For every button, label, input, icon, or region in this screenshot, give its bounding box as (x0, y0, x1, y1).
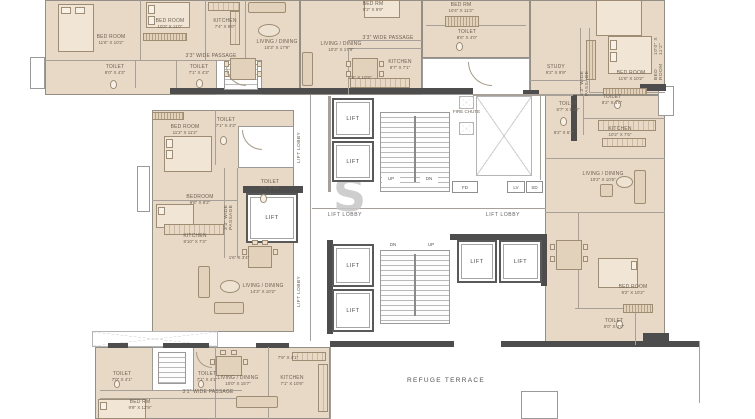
lift-core-4: LIFT (332, 289, 374, 332)
kitchen-counter (318, 364, 328, 412)
partition (545, 212, 665, 213)
stair-dn-label: DN (420, 176, 438, 183)
floor-plan: S LIFT LIFT LIFT LIFT LIFT LIFT LIFT UP … (0, 0, 755, 419)
lift-lobby-label: LIFT LOBBY (478, 212, 528, 221)
room-label-toilet: TOILET7'1" X 4'3" (204, 117, 248, 130)
chair (257, 71, 262, 77)
partition (583, 118, 665, 119)
stair-rail (414, 254, 416, 316)
pillow (166, 150, 173, 159)
room-label-toilet: TOILET8'0" X 4'0" (590, 318, 638, 331)
room-label-bedroom: BEDROOM9'8" X 8'2" (176, 194, 224, 207)
pillow (158, 207, 165, 215)
chair (257, 61, 262, 67)
entry-steps-bottom (158, 352, 186, 384)
room-label-kitchen: KITCHEN7'1" X 10'8" (269, 375, 315, 388)
room-label-bedroom: BED RM9'9" X 12'9" (116, 399, 164, 412)
room-label-foyer: 8'2" X 6'1" (544, 130, 584, 137)
pillow (166, 139, 173, 148)
lift-label: LIFT (503, 244, 538, 279)
coffee-table (258, 24, 280, 37)
sofa (214, 302, 244, 314)
lift-left-wing: LIFT (246, 193, 298, 243)
wall (170, 88, 473, 94)
chair (550, 244, 555, 250)
lift-core-5: LIFT (457, 240, 497, 283)
refuge-terrace-label: REFUGE TERRACE (398, 377, 494, 387)
lift-label: LIFT (336, 145, 370, 178)
wardrobe (152, 112, 184, 120)
room-label-toilet: TOILET7'0" X 4'1" (101, 371, 143, 384)
lift-core-3: LIFT (332, 244, 374, 287)
sofa (248, 2, 286, 13)
terrace-planter (521, 391, 558, 419)
wall (330, 341, 454, 347)
room-label-living: LIVING / DINING10'3" X 17'9" (315, 41, 367, 54)
ac-ledge-left-1 (30, 57, 45, 89)
room-label-passage: 3'3" WIDE PASSAGE (173, 53, 249, 60)
stair-rail (414, 116, 416, 182)
kitchen-counter (208, 2, 240, 11)
ac-ledge-left-2 (137, 166, 150, 212)
wall (108, 343, 128, 348)
room-label-bedroom: BED RM10'4" X 11'2" (433, 2, 489, 15)
room-label-study: STUDY9'2" X 9'9" (533, 64, 579, 77)
room-label-living: LIVING / DINING10'0" X 15'7" (212, 375, 264, 388)
room-label-deck: 7'9" X 4'1" (268, 355, 308, 362)
pillow (75, 7, 85, 14)
sofa (302, 52, 313, 86)
chair (550, 256, 555, 262)
chair (583, 244, 588, 250)
pillow (61, 7, 71, 14)
lift-core-1: LIFT (332, 98, 374, 139)
room-label-passage-vertical: 3'3" WIDE PASSAGE (580, 50, 589, 96)
room-label-kitchen: KITCHEN8'10" X 7'3" (170, 233, 220, 246)
toilet-fixture (560, 117, 567, 126)
room-label-bedroom: BED ROOM11'2" X 11'2" (160, 124, 210, 137)
lift-label: LIFT (250, 197, 294, 239)
wall (256, 343, 289, 348)
wardrobe (143, 33, 187, 41)
lift-core-2: LIFT (332, 141, 374, 182)
fire-chute-shaft (459, 122, 474, 135)
room-label-toilet: TOILET7'1" X 4'3" (176, 64, 222, 77)
partition (237, 168, 238, 258)
lift-lobby-label-vertical: LIFT LOBBY (297, 122, 308, 172)
room-label-passage: 3'1" WIDE PASSAGE (170, 389, 246, 396)
lift-lobby-label: LIFT LOBBY (320, 212, 370, 221)
dining-table (556, 240, 582, 270)
room-label-living: LIVING / DINING10'3" X 17'9" (251, 39, 303, 52)
pillow (148, 5, 155, 14)
machine-room-shaft (476, 96, 532, 176)
wardrobe (623, 304, 653, 313)
stair-dn-label: DN (384, 242, 402, 249)
wall (501, 341, 700, 347)
room-label-deck: 2'6" X 10'8" (338, 75, 382, 82)
room-label-passage-vertical: 3'3" WIDE PASSAGE (224, 180, 233, 230)
chair (583, 256, 588, 262)
lift-label: LIFT (336, 102, 370, 135)
armchair (600, 184, 613, 197)
room-label-living: LIVING / DINING10'2" X 10'6" (576, 171, 630, 184)
room-label-toilet: TOILET8'0" X 4'3" (92, 64, 138, 77)
chair (262, 240, 268, 245)
partition (45, 60, 245, 61)
pillow (610, 52, 617, 62)
chair (231, 350, 237, 355)
chair (220, 350, 226, 355)
pillow (100, 402, 107, 410)
wall (328, 96, 331, 192)
room-label-bedroom: BED ROOM11'6" X 10'2" (603, 70, 659, 83)
partition (330, 347, 331, 419)
room-label-bedroom: BED ROOM9'2" X 10'2" (608, 284, 658, 297)
room-label-toilet: TOILET8'2" X 4'0" (588, 94, 636, 107)
lift-lobby-label-vertical: LIFT LOBBY (297, 266, 308, 316)
fire-chute-shaft (459, 96, 474, 109)
partition (545, 158, 665, 159)
partition (540, 96, 541, 180)
wall (163, 343, 209, 348)
toilet-fixture (196, 79, 203, 88)
chair (346, 61, 351, 67)
partition (530, 80, 585, 81)
room-label-bedroom: BED ROOM11'6" X 10'2" (80, 34, 142, 47)
fd-duct: FD (452, 181, 478, 193)
room-label-kitchen: KITCHEN10'2" X 7'5" (596, 126, 644, 139)
chair (243, 359, 248, 365)
room-label-living: LIVING / DINING14'3" X 10'2" (236, 283, 290, 296)
lv-duct: LV (507, 181, 525, 193)
sd-duct: SD (526, 181, 543, 193)
room-label-toilet: TOILET7'2" X 4'6" (248, 179, 292, 192)
room-label-passage: 3'3" WIDE PASSAGE (352, 35, 424, 42)
wardrobe (445, 16, 479, 27)
toilet-fixture (456, 42, 463, 51)
room-label-kitchen: KITCHEN9'7" X 7'1" (378, 59, 422, 72)
toilet-fixture (220, 136, 227, 145)
chair (273, 249, 278, 255)
pillow (610, 40, 617, 50)
room-label-toilet: TOILET8'6" X 4'0" (441, 29, 493, 42)
lift-label: LIFT (336, 248, 370, 283)
partition (140, 0, 141, 60)
room-label-toilet: TOILET5'7" X 5'10" (544, 101, 592, 114)
lift-core-6: LIFT (499, 240, 542, 283)
kitchen-counter (602, 138, 646, 147)
sofa (198, 266, 210, 298)
sofa (634, 170, 646, 204)
toilet-fixture (260, 194, 267, 203)
partition (310, 95, 311, 341)
stair-up-label: UP (382, 176, 400, 183)
lift-label: LIFT (336, 293, 370, 328)
sofa (236, 396, 278, 408)
toilet-fixture (110, 80, 117, 89)
room-label-bedroom: BED ROOM10'3" X 11'0" (144, 18, 196, 31)
room-label-bedroom: BED RM9'2" X 9'9" (350, 1, 396, 14)
room-label-kitchen: KITCHEN7'4" X 9'0" (203, 18, 247, 31)
partition (699, 341, 700, 403)
chair (252, 240, 258, 245)
room-label-niche: 1'6" X 3'4" (220, 255, 258, 262)
stair-up-label: UP (422, 242, 440, 249)
lift-label: LIFT (461, 244, 493, 279)
bed (596, 0, 642, 36)
pillow (631, 261, 637, 270)
